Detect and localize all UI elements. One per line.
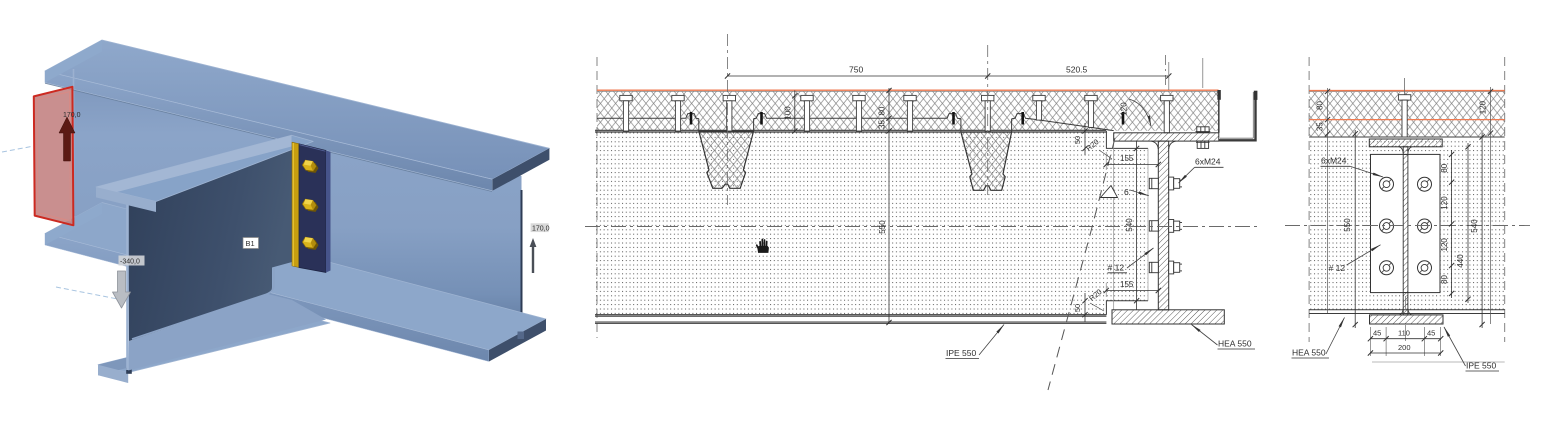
svg-text:440: 440 — [1456, 254, 1465, 268]
svg-text:# 12: # 12 — [1329, 263, 1346, 273]
svg-text:170,0: 170,0 — [532, 226, 550, 233]
svg-text:50: 50 — [1073, 136, 1082, 144]
svg-text:B1: B1 — [246, 239, 255, 248]
svg-text:540: 540 — [1470, 219, 1479, 233]
svg-text:IPE 550: IPE 550 — [946, 348, 977, 358]
svg-text:200: 200 — [1398, 343, 1411, 352]
svg-text:HEA 550: HEA 550 — [1218, 339, 1252, 349]
svg-text:HEA 550: HEA 550 — [1292, 348, 1326, 358]
svg-text:520.5: 520.5 — [1066, 65, 1088, 75]
svg-text:155: 155 — [1120, 280, 1134, 289]
svg-text:80: 80 — [1440, 275, 1449, 284]
svg-text:80: 80 — [1316, 101, 1325, 110]
svg-text:120: 120 — [1440, 238, 1449, 252]
svg-text:6: 6 — [1124, 187, 1129, 197]
svg-text:80: 80 — [878, 106, 887, 115]
svg-text:540: 540 — [1125, 218, 1134, 232]
svg-text:170,0: 170,0 — [63, 112, 81, 119]
svg-text:35: 35 — [878, 120, 887, 129]
svg-text:6xM24: 6xM24 — [1321, 156, 1347, 166]
svg-text:155: 155 — [1120, 154, 1134, 163]
svg-text:120: 120 — [1479, 100, 1488, 114]
svg-text:35: 35 — [1316, 122, 1325, 131]
svg-text:45: 45 — [1373, 329, 1381, 338]
svg-text:# 12: # 12 — [1108, 263, 1125, 273]
svg-text:750: 750 — [849, 65, 863, 75]
svg-text:100: 100 — [784, 106, 793, 120]
svg-text:550: 550 — [878, 220, 887, 234]
svg-text:IPE 550: IPE 550 — [1466, 361, 1497, 371]
svg-text:120: 120 — [1120, 102, 1129, 116]
svg-text:550: 550 — [1343, 218, 1352, 232]
svg-text:80: 80 — [1440, 163, 1449, 172]
svg-text:50: 50 — [1073, 304, 1082, 312]
svg-text:-340,0: -340,0 — [120, 259, 140, 266]
svg-text:110: 110 — [1398, 329, 1410, 338]
svg-text:120: 120 — [1440, 196, 1449, 210]
svg-text:45: 45 — [1427, 329, 1435, 338]
svg-text:6xM24: 6xM24 — [1195, 157, 1221, 167]
